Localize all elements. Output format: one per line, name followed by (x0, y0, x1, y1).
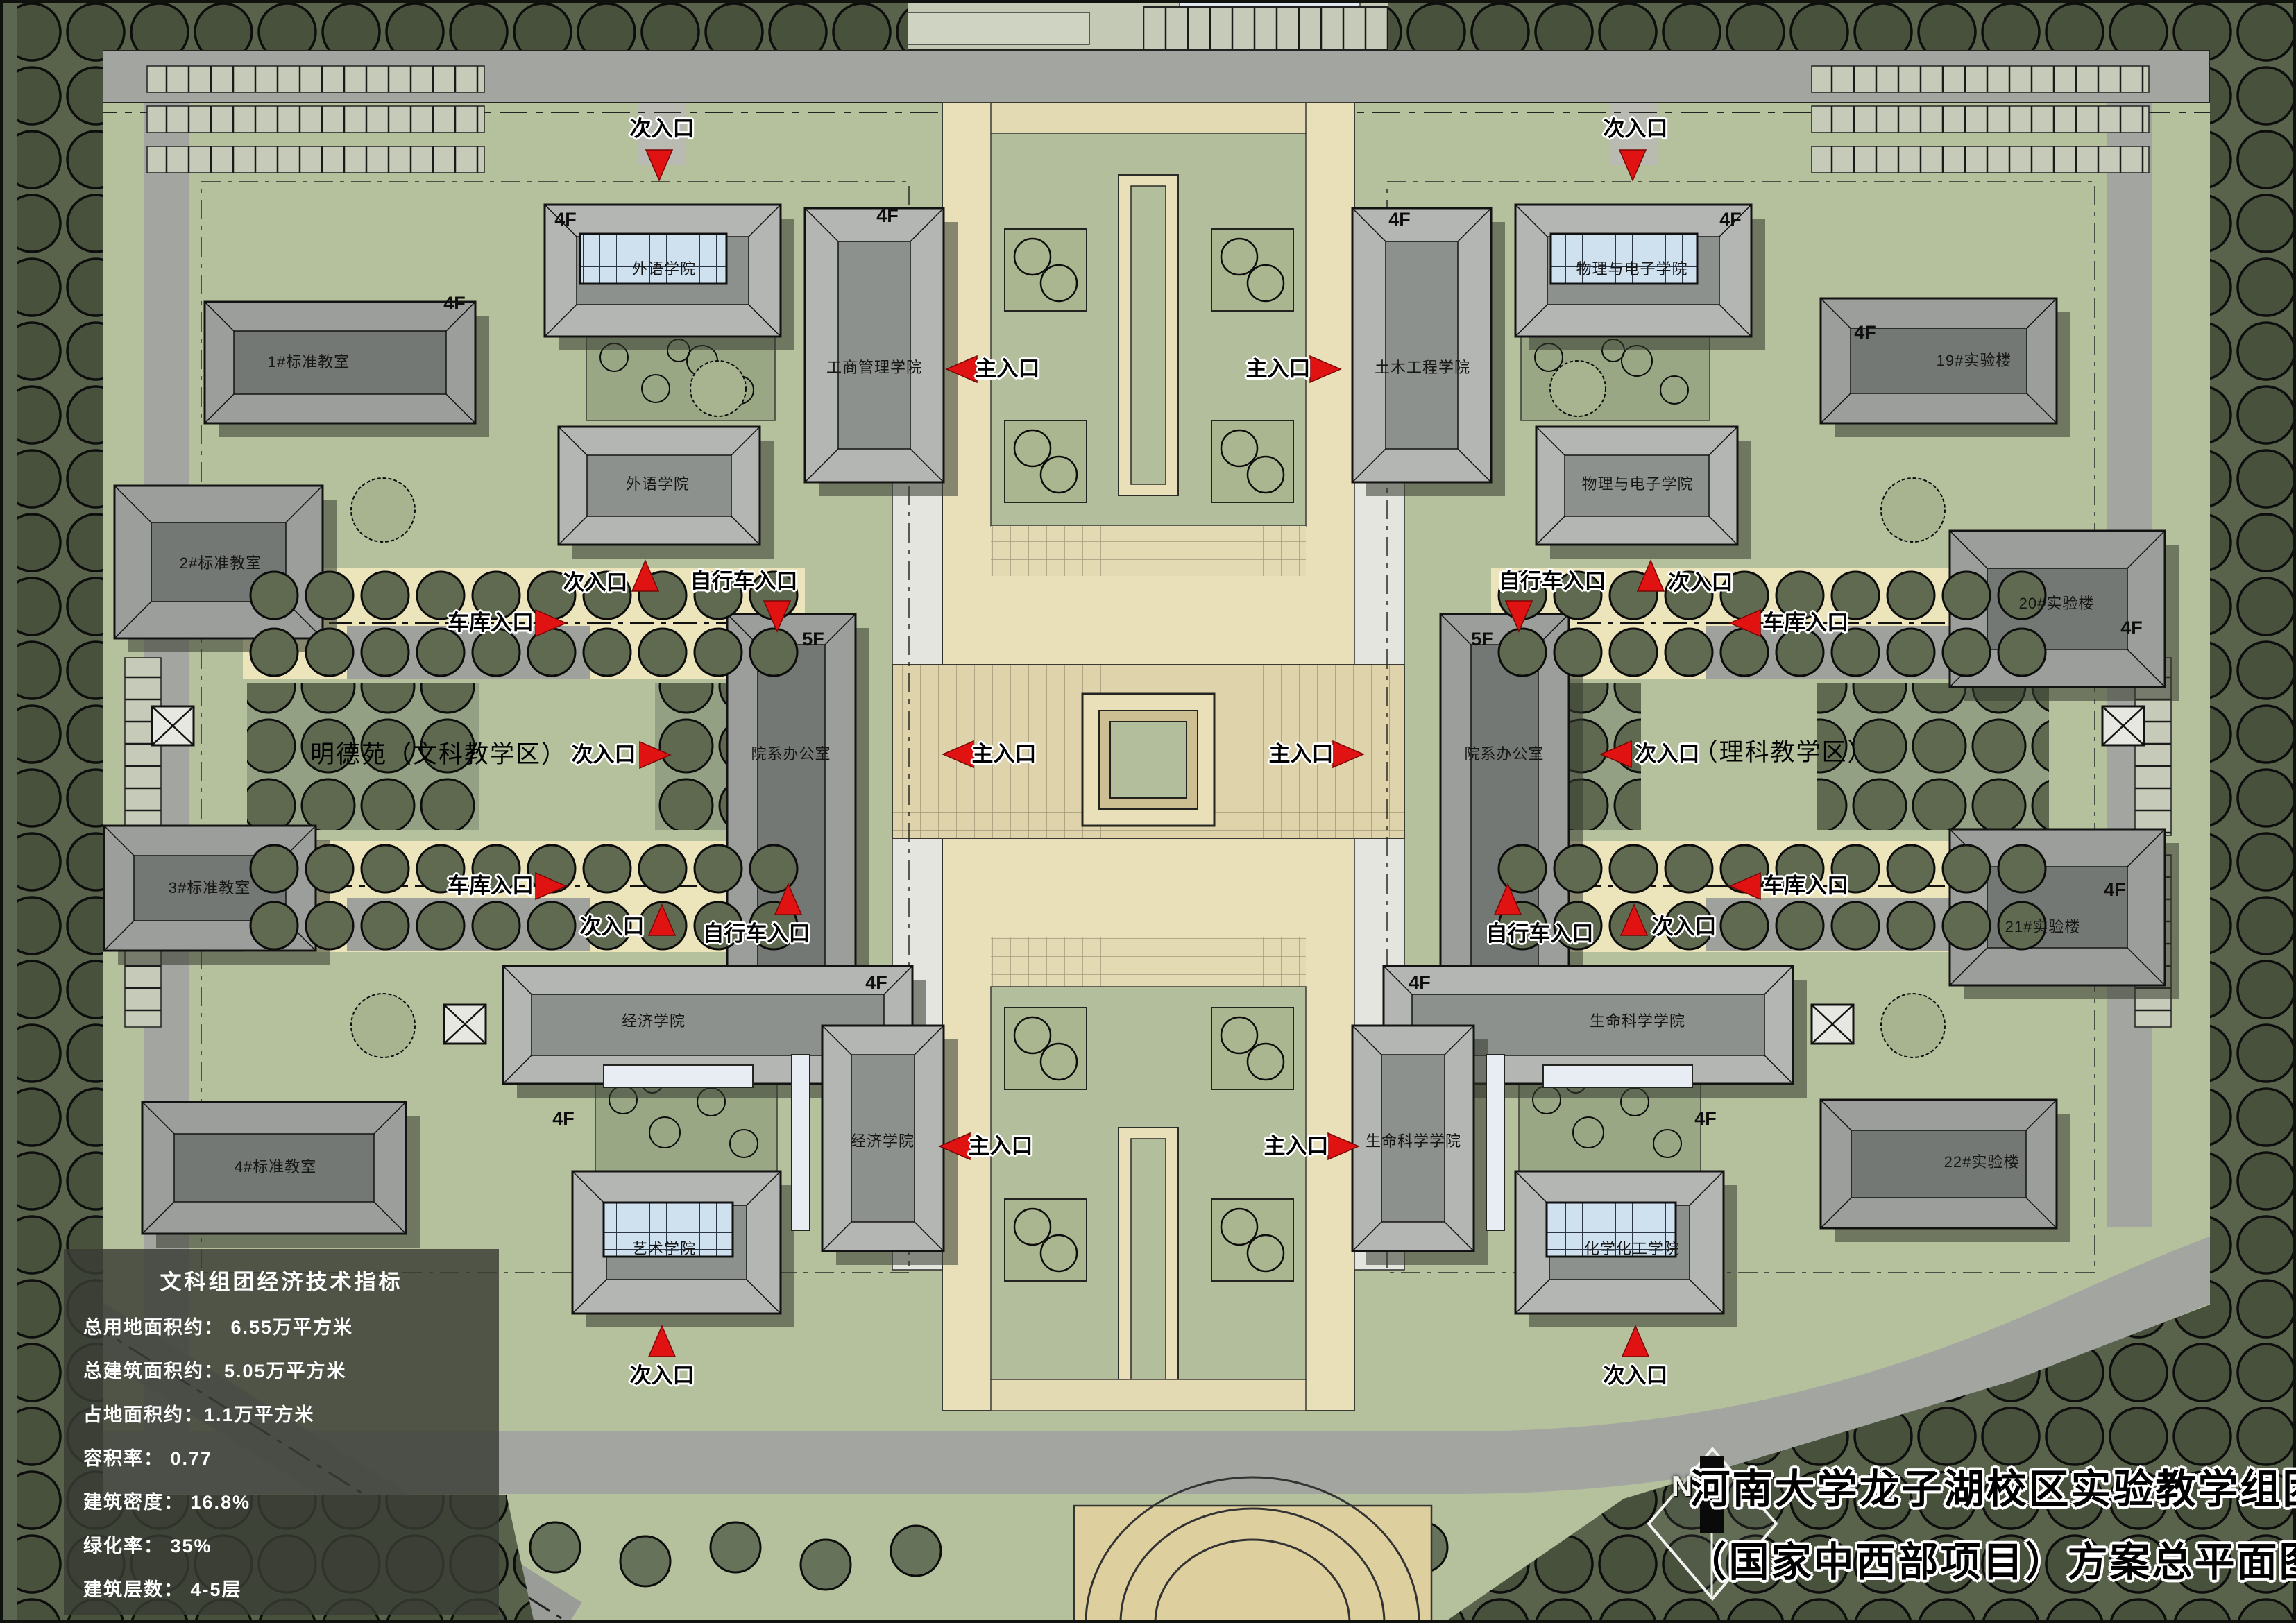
north-label: N (1672, 1470, 1692, 1502)
building-shape (1515, 205, 1765, 350)
legend-row-green: 绿化率： 35% (83, 1531, 499, 1558)
building-shape (572, 1171, 794, 1327)
legend-row-far: 容积率： 0.77 (83, 1443, 499, 1470)
pavilion-shape (1812, 1005, 1853, 1044)
legend-title: 文科组团经济技术指标 (64, 1264, 499, 1295)
building-shape (1352, 1026, 1488, 1265)
building-shape (1821, 298, 2070, 437)
building-shape (142, 1102, 420, 1248)
building-shape (104, 826, 330, 965)
pavilion-shape (2102, 706, 2144, 745)
building-shape (822, 1026, 958, 1265)
building-shape (1821, 1100, 2070, 1242)
building-shape (1352, 208, 1505, 496)
legend-panel: 文科组团经济技术指标 总用地面积约： 6.55万平方米 总建筑面积约：5.05万… (64, 1249, 499, 1615)
legend-row-footprint: 占地面积约：1.1万平方米 (83, 1400, 499, 1427)
title-line-1: 河南大学龙子湖校区实验教学组团 (1690, 1468, 2296, 1512)
legend-row-floors: 建筑层数： 4-5层 (83, 1574, 499, 1601)
building-shape (114, 486, 337, 652)
glass-atrium (1551, 234, 1697, 284)
building-shape (559, 427, 774, 559)
building-shape (1950, 531, 2179, 701)
building-shape (805, 208, 958, 496)
building-shape (545, 205, 794, 350)
legend-row-density: 建筑密度： 16.8% (83, 1487, 499, 1514)
glass-atrium (580, 234, 726, 284)
pavilion-shape (444, 1005, 486, 1044)
campus-master-plan: 1#标准教室2#标准教室3#标准教室4#标准教室外语学院工商管理学院外语学院院系… (0, 0, 2296, 1623)
title-line-2: （国家中西部项目）方案总平面图 (1686, 1540, 2296, 1585)
pavilion-shape (152, 706, 194, 745)
building-shape (1536, 427, 1751, 559)
glass-atrium (604, 1203, 733, 1257)
glass-atrium (1547, 1203, 1676, 1257)
legend-row-site-area: 总用地面积约： 6.55万平方米 (83, 1312, 499, 1339)
building-shape (205, 302, 489, 437)
building-shape (1515, 1171, 1737, 1327)
legend-row-floor-area: 总建筑面积约：5.05万平方米 (83, 1356, 499, 1383)
